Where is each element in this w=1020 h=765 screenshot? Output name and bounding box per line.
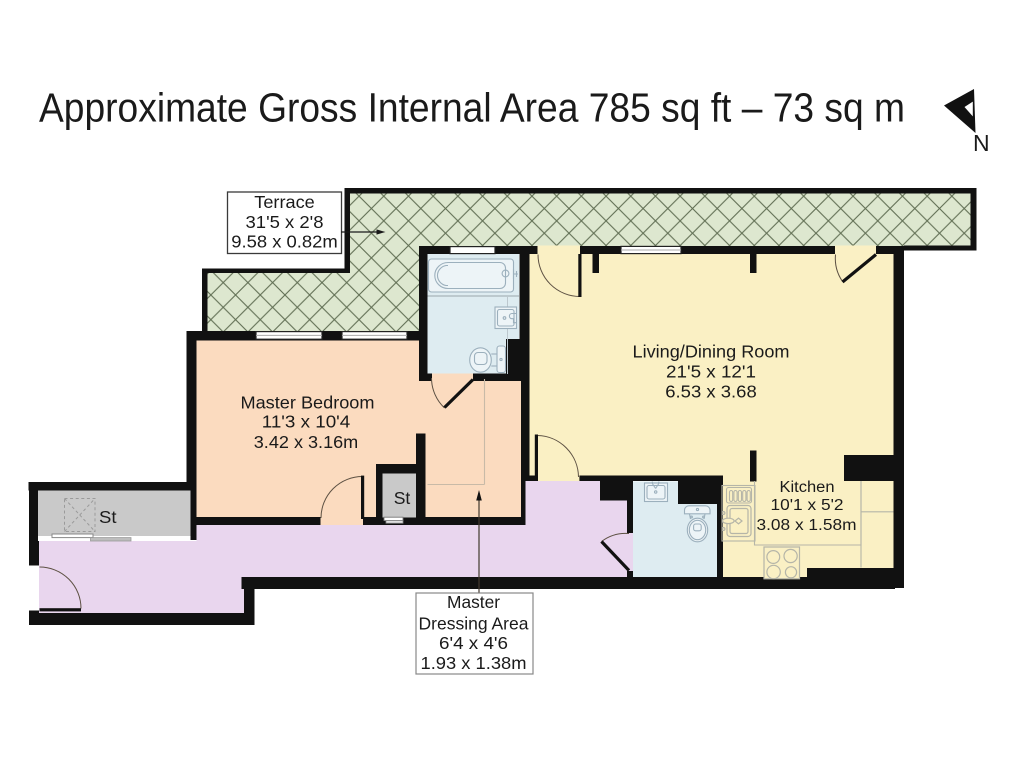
svg-text:St: St: [99, 507, 117, 527]
svg-text:31'5 x 2'8: 31'5 x 2'8: [246, 212, 324, 232]
svg-text:3.08 x 1.58m: 3.08 x 1.58m: [757, 517, 857, 534]
svg-text:Living/Dining Room: Living/Dining Room: [633, 342, 790, 362]
svg-text:Master: Master: [447, 592, 500, 612]
svg-text:11'3 x 10'4: 11'3 x 10'4: [262, 412, 351, 432]
svg-text:Kitchen: Kitchen: [780, 479, 835, 496]
svg-text:1.93 x 1.38m: 1.93 x 1.38m: [421, 653, 527, 673]
svg-text:St: St: [394, 488, 411, 508]
svg-text:10'1 x 5'2: 10'1 x 5'2: [771, 497, 844, 514]
svg-text:Dressing Area: Dressing Area: [419, 614, 529, 634]
svg-text:21'5 x 12'1: 21'5 x 12'1: [666, 362, 756, 382]
svg-text:3.42 x 3.16m: 3.42 x 3.16m: [254, 432, 359, 452]
svg-text:Terrace: Terrace: [254, 192, 315, 212]
svg-text:6.53 x 3.68: 6.53 x 3.68: [665, 382, 757, 402]
svg-text:N: N: [973, 130, 990, 156]
svg-text:Master Bedroom: Master Bedroom: [241, 392, 375, 412]
svg-text:9.58 x 0.82m: 9.58 x 0.82m: [231, 232, 338, 252]
svg-text:6'4 x 4'6: 6'4 x 4'6: [439, 633, 508, 653]
svg-text:Approximate Gross Internal Are: Approximate Gross Internal Area 785 sq f…: [39, 85, 905, 131]
